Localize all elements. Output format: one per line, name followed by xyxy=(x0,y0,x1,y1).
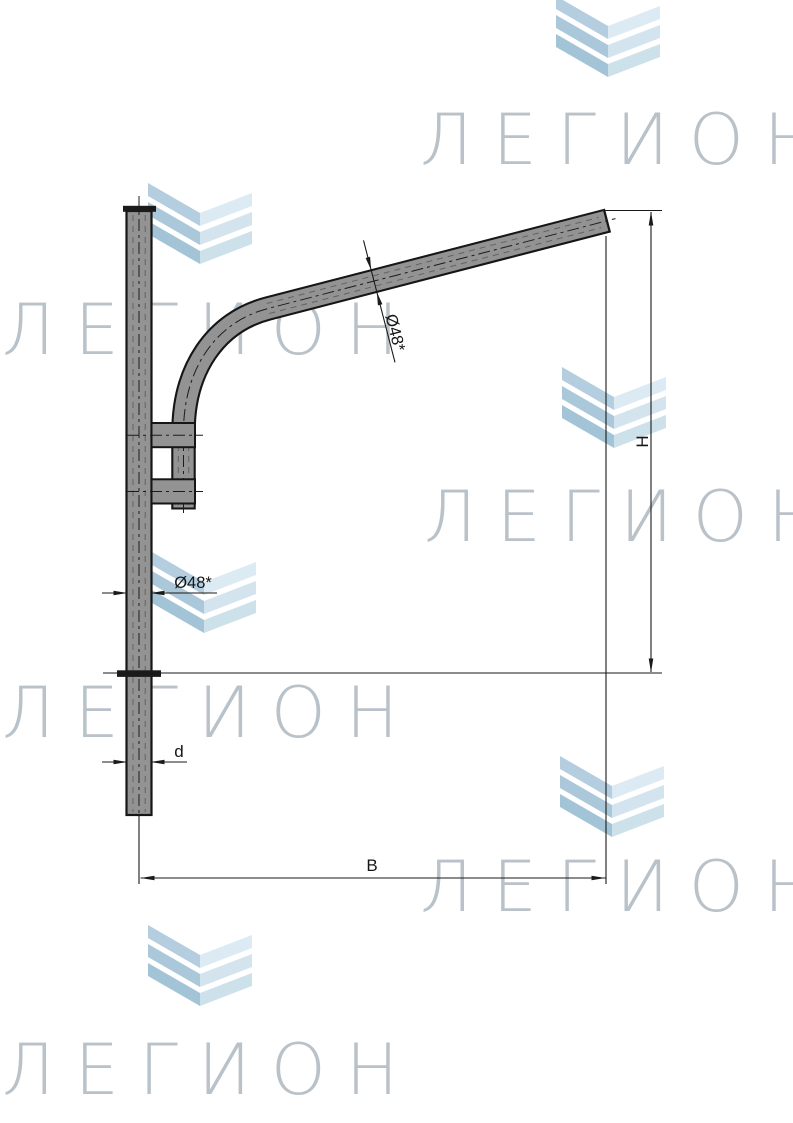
dim-label-height: H xyxy=(633,435,652,447)
stop-flange xyxy=(117,670,161,677)
pole-top-cap xyxy=(123,206,156,212)
watermark-text: ЛЕГИОН xyxy=(424,476,793,558)
watermark-text: ЛЕГИОН xyxy=(420,99,793,181)
dim-label-post-diameter: Ø48* xyxy=(174,574,212,592)
dim-label-pole-diameter: d xyxy=(174,742,183,761)
drawing-page: ЛЕГИОН ЛЕГИОН ЛЕГИОН ЛЕГИОН ЛЕГИОН ЛЕГИО… xyxy=(0,0,793,1123)
dim-label-reach: B xyxy=(366,856,377,875)
technical-drawing: ЛЕГИОН ЛЕГИОН ЛЕГИОН ЛЕГИОН ЛЕГИОН ЛЕГИО… xyxy=(0,0,793,1123)
watermark-text: ЛЕГИОН xyxy=(2,1029,418,1111)
watermark-text: ЛЕГИОН xyxy=(2,672,418,754)
